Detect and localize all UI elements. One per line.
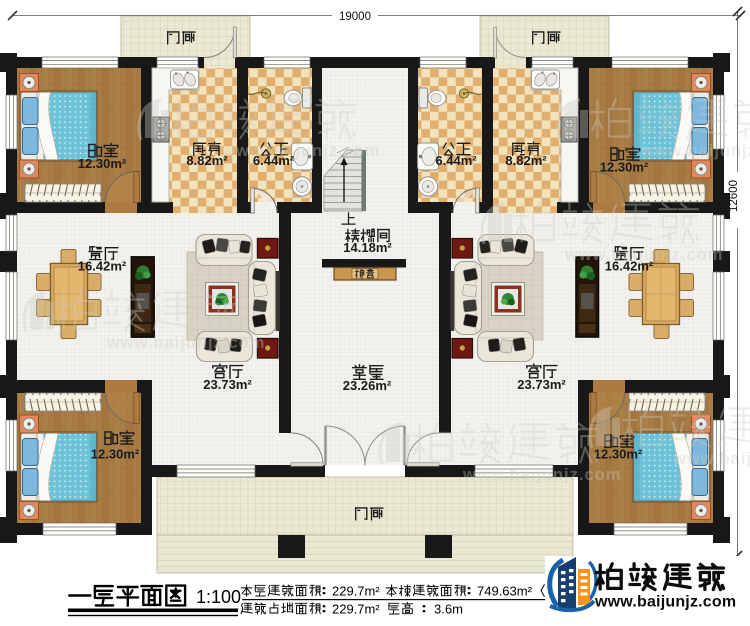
svg-text:www.baijunjz.com: www.baijunjz.com (462, 466, 621, 484)
svg-text:www.baijunjz.com: www.baijunjz.com (672, 450, 750, 468)
svg-text:12600: 12600 (728, 180, 740, 212)
svg-text:www.baijunjz.com: www.baijunjz.com (221, 142, 380, 160)
svg-text:23.73m²: 23.73m² (203, 377, 252, 392)
svg-text:19000: 19000 (339, 11, 371, 23)
svg-text:12.30m²: 12.30m² (600, 160, 649, 175)
svg-text:www.baijunjz.com: www.baijunjz.com (640, 142, 750, 160)
svg-text:16.42m²: 16.42m² (78, 259, 127, 274)
svg-text:12.30m²: 12.30m² (78, 156, 127, 171)
svg-text:www.baijunjz.com: www.baijunjz.com (564, 246, 723, 264)
svg-text:23.26m²: 23.26m² (343, 378, 392, 393)
svg-text:www.baijunjz.com: www.baijunjz.com (106, 334, 265, 352)
svg-text:6.44m²: 6.44m² (435, 153, 477, 168)
svg-text:14.18m²: 14.18m² (343, 240, 392, 255)
svg-text:23.73m²: 23.73m² (517, 377, 566, 392)
svg-text:12.30m²: 12.30m² (91, 447, 140, 462)
svg-text:8.82m²: 8.82m² (505, 153, 547, 168)
svg-text:12.30m²: 12.30m² (594, 447, 643, 462)
